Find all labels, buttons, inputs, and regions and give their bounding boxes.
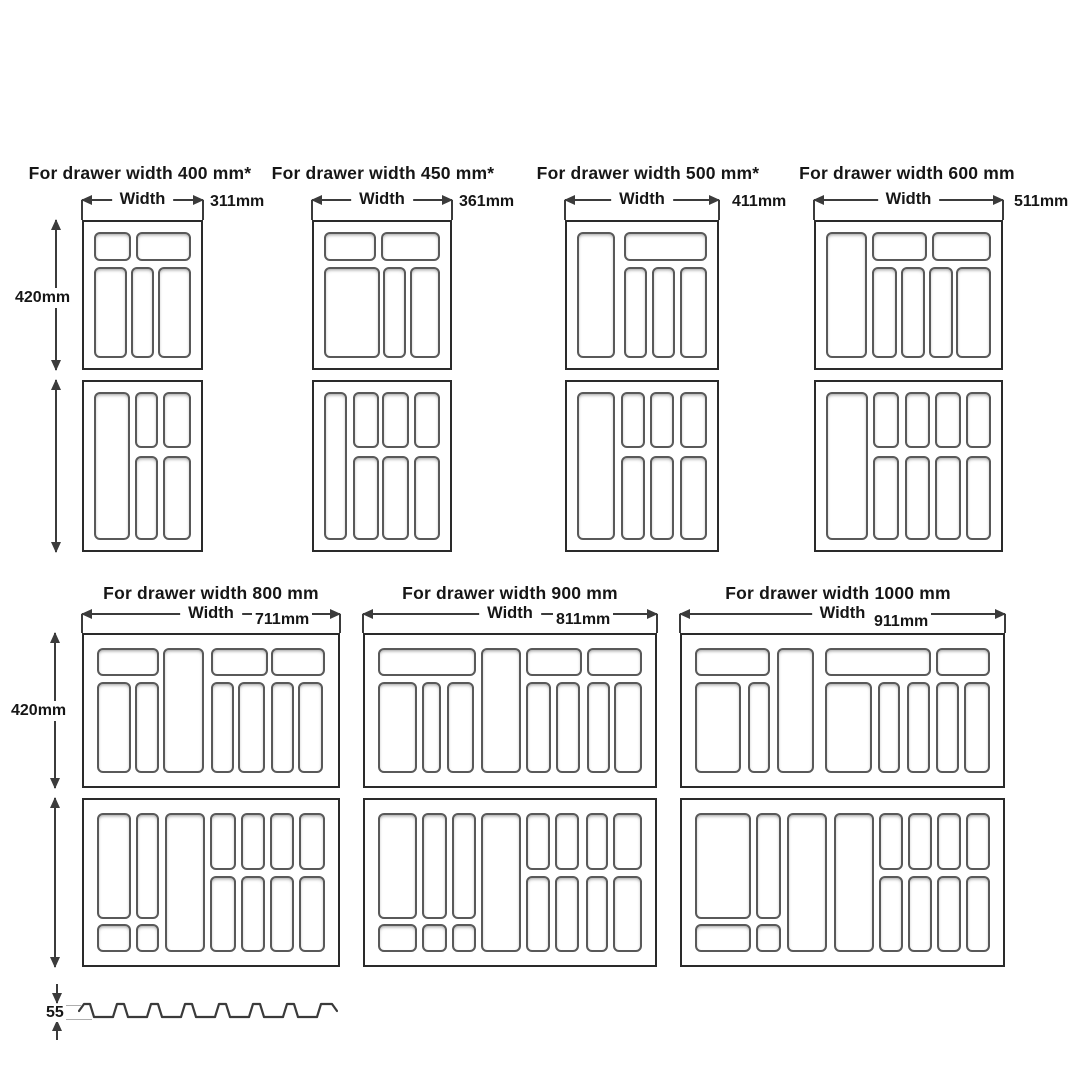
tray-compartment bbox=[210, 813, 236, 870]
tray-compartment bbox=[452, 924, 476, 952]
tray-compartment bbox=[935, 456, 960, 540]
tray-compartment bbox=[414, 392, 440, 448]
tray-compartment-area bbox=[378, 813, 642, 952]
tray-compartment bbox=[526, 682, 550, 773]
extension-line bbox=[81, 614, 83, 633]
tray-compartment bbox=[324, 267, 380, 358]
tray-compartment bbox=[555, 876, 579, 952]
tray-compartment bbox=[238, 682, 264, 773]
panel-title: For drawer width 450 mm* bbox=[272, 163, 495, 184]
tray-compartment bbox=[136, 232, 191, 261]
tray-compartment bbox=[211, 648, 268, 676]
tray-compartment bbox=[452, 813, 476, 919]
tray-compartment bbox=[136, 924, 159, 952]
tray-compartment bbox=[936, 648, 990, 676]
tray-compartment bbox=[956, 267, 991, 358]
tray-compartment bbox=[932, 232, 991, 261]
tray-compartment bbox=[158, 267, 191, 358]
tray-compartment bbox=[756, 924, 780, 952]
tray-compartment bbox=[787, 813, 827, 952]
tray-compartment bbox=[210, 876, 236, 952]
tray-compartment bbox=[621, 392, 645, 448]
width-value-label: 711mm bbox=[252, 610, 312, 630]
width-dim-label: Width bbox=[180, 604, 242, 623]
width-dim-label: Width bbox=[479, 604, 541, 623]
arrow-down-icon bbox=[50, 778, 60, 789]
tray-compartment bbox=[526, 876, 550, 952]
tray-top-view bbox=[363, 633, 657, 788]
tray-compartment bbox=[650, 456, 675, 540]
profile-path bbox=[79, 1004, 337, 1017]
tray-compartment bbox=[382, 456, 409, 540]
tray-compartment bbox=[929, 267, 952, 358]
tray-compartment-area bbox=[826, 232, 991, 358]
tray-compartment bbox=[905, 392, 930, 448]
tray-compartment bbox=[901, 267, 925, 358]
tray-compartment bbox=[879, 813, 903, 870]
tray-top-view bbox=[82, 633, 340, 788]
tray-compartment bbox=[94, 267, 127, 358]
arrow-up-icon bbox=[51, 379, 61, 390]
extension-line bbox=[718, 200, 720, 220]
tray-compartment bbox=[135, 392, 158, 448]
tray-compartment bbox=[298, 682, 324, 773]
tray-compartment bbox=[241, 813, 266, 870]
tray-compartment bbox=[94, 232, 131, 261]
tray-compartment bbox=[211, 682, 234, 773]
tray-side-profile-drawing bbox=[78, 1002, 338, 1026]
tray-compartment bbox=[97, 924, 131, 952]
extension-line bbox=[202, 200, 204, 220]
arrow-down-icon bbox=[51, 360, 61, 371]
tray-compartment bbox=[624, 267, 647, 358]
width-dim-label: Width bbox=[351, 190, 413, 209]
tray-compartment bbox=[131, 267, 153, 358]
extension-line bbox=[813, 200, 815, 220]
tray-compartment bbox=[555, 813, 579, 870]
tray-compartment bbox=[680, 456, 707, 540]
tray-top-view bbox=[82, 220, 203, 370]
tray-compartment-area bbox=[695, 813, 990, 952]
tray-compartment bbox=[935, 392, 960, 448]
tray-compartment bbox=[879, 876, 903, 952]
tray-compartment bbox=[299, 876, 325, 952]
tray-compartment bbox=[481, 813, 521, 952]
arrow-down-icon bbox=[50, 957, 60, 968]
tray-compartment bbox=[378, 813, 417, 919]
tray-compartment bbox=[587, 682, 610, 773]
tray-compartment bbox=[873, 392, 898, 448]
tray-compartment bbox=[422, 682, 442, 773]
dim-line bbox=[54, 798, 56, 967]
tray-compartment-area bbox=[94, 392, 191, 540]
tray-compartment bbox=[937, 876, 961, 952]
extension-line bbox=[564, 200, 566, 220]
tray-compartment bbox=[378, 924, 417, 952]
tray-compartment bbox=[937, 813, 961, 870]
arrow-up-icon bbox=[50, 632, 60, 643]
extension-line bbox=[451, 200, 453, 220]
panel-title: For drawer width 900 mm bbox=[402, 583, 618, 604]
tray-compartment bbox=[556, 682, 580, 773]
tray-compartment bbox=[966, 456, 991, 540]
extension-line bbox=[1002, 200, 1004, 220]
panel-title: For drawer width 500 mm* bbox=[537, 163, 760, 184]
tray-compartment bbox=[97, 813, 131, 919]
tray-compartment bbox=[383, 267, 406, 358]
tray-compartment bbox=[908, 876, 932, 952]
tray-compartment bbox=[135, 682, 159, 773]
tray-compartment bbox=[872, 232, 926, 261]
extension-line bbox=[656, 614, 658, 633]
panel-title: For drawer width 600 mm bbox=[799, 163, 1015, 184]
tray-compartment bbox=[748, 682, 770, 773]
tray-compartment bbox=[324, 232, 376, 261]
tray-compartment-area bbox=[378, 648, 642, 773]
tray-compartment bbox=[826, 232, 867, 358]
width-value-label: 511mm bbox=[1011, 192, 1071, 212]
tray-compartment bbox=[163, 648, 204, 773]
tray-compartment bbox=[624, 232, 707, 261]
tray-compartment bbox=[613, 876, 642, 952]
profile-height-label: 55 bbox=[44, 1004, 66, 1022]
tray-compartment bbox=[586, 813, 608, 870]
extension-line bbox=[81, 200, 83, 220]
tray-compartment bbox=[577, 232, 615, 358]
extension-line bbox=[679, 614, 681, 633]
tray-compartment bbox=[908, 813, 932, 870]
width-dim-label: Width bbox=[611, 190, 673, 209]
tray-compartment bbox=[695, 924, 751, 952]
cutlery-tray-size-diagram: 55 420mmFor drawer width 400 mm*Width311… bbox=[0, 0, 1080, 1080]
tray-compartment bbox=[936, 682, 959, 773]
tray-compartment bbox=[825, 648, 931, 676]
tray-compartment bbox=[422, 924, 448, 952]
tray-variant-view bbox=[312, 380, 452, 552]
tray-compartment-area bbox=[826, 392, 991, 540]
dim-line bbox=[55, 380, 57, 552]
tray-compartment bbox=[907, 682, 930, 773]
tray-compartment bbox=[163, 392, 191, 448]
tray-top-view bbox=[565, 220, 719, 370]
tray-compartment bbox=[587, 648, 642, 676]
tray-compartment-area bbox=[324, 232, 440, 358]
tray-compartment bbox=[777, 648, 814, 773]
width-dim-label: Width bbox=[112, 190, 174, 209]
tray-compartment bbox=[614, 682, 642, 773]
width-value-label: 411mm bbox=[729, 192, 789, 212]
width-value-label: 911mm bbox=[871, 612, 931, 632]
tray-compartment-area bbox=[94, 232, 191, 358]
tray-variant-view bbox=[82, 380, 203, 552]
tray-compartment bbox=[422, 813, 448, 919]
tray-compartment bbox=[414, 456, 440, 540]
tray-compartment bbox=[353, 456, 379, 540]
tray-compartment bbox=[270, 876, 294, 952]
tray-compartment bbox=[353, 392, 379, 448]
tray-compartment bbox=[872, 267, 897, 358]
tray-compartment bbox=[481, 648, 522, 773]
tray-compartment bbox=[613, 813, 642, 870]
tray-compartment bbox=[577, 392, 615, 540]
tray-compartment-area bbox=[97, 813, 325, 952]
tray-compartment bbox=[271, 682, 294, 773]
tray-variant-view bbox=[363, 798, 657, 967]
extension-line bbox=[339, 614, 341, 633]
tray-compartment bbox=[650, 392, 675, 448]
tray-compartment bbox=[378, 648, 476, 676]
arrow-down-icon bbox=[51, 542, 61, 553]
tray-compartment bbox=[826, 392, 868, 540]
tray-compartment-area bbox=[695, 648, 990, 773]
tray-compartment bbox=[834, 813, 874, 952]
tray-variant-view bbox=[814, 380, 1003, 552]
tray-compartment bbox=[381, 232, 440, 261]
tray-compartment bbox=[905, 456, 930, 540]
tray-compartment bbox=[447, 682, 474, 773]
tray-compartment bbox=[94, 392, 130, 540]
tray-compartment bbox=[526, 648, 581, 676]
tray-compartment bbox=[652, 267, 675, 358]
tray-compartment bbox=[873, 456, 898, 540]
arrow-up-icon bbox=[51, 219, 61, 230]
tray-compartment bbox=[695, 648, 770, 676]
tray-compartment bbox=[97, 648, 159, 676]
extension-line bbox=[311, 200, 313, 220]
tray-top-view bbox=[814, 220, 1003, 370]
tray-compartment-area bbox=[577, 392, 707, 540]
tray-compartment bbox=[136, 813, 159, 919]
arrow-up-icon bbox=[50, 797, 60, 808]
extension-line bbox=[1004, 614, 1006, 633]
tray-top-view bbox=[680, 633, 1005, 788]
tray-compartment bbox=[241, 876, 266, 952]
tray-compartment bbox=[680, 392, 707, 448]
width-value-label: 361mm bbox=[456, 192, 517, 212]
tray-compartment bbox=[135, 456, 158, 540]
tray-variant-view bbox=[82, 798, 340, 967]
tray-top-view bbox=[312, 220, 452, 370]
tray-compartment bbox=[165, 813, 205, 952]
tray-compartment-area bbox=[324, 392, 440, 540]
tray-compartment bbox=[680, 267, 707, 358]
panel-title: For drawer width 1000 mm bbox=[725, 583, 951, 604]
tray-variant-view bbox=[680, 798, 1005, 967]
tray-compartment bbox=[695, 813, 751, 919]
width-value-label: 311mm bbox=[207, 192, 267, 212]
panel-title: For drawer width 800 mm bbox=[103, 583, 319, 604]
tray-compartment bbox=[526, 813, 550, 870]
tray-compartment bbox=[966, 813, 990, 870]
tray-compartment bbox=[966, 876, 990, 952]
arrow-down-icon bbox=[52, 993, 62, 1004]
panel-title: For drawer width 400 mm* bbox=[29, 163, 252, 184]
tray-compartment bbox=[586, 876, 608, 952]
tray-compartment-area bbox=[577, 232, 707, 358]
tray-compartment bbox=[695, 682, 741, 773]
tray-compartment bbox=[97, 682, 131, 773]
tray-compartment bbox=[324, 392, 347, 540]
height-dim-label: 420mm bbox=[12, 288, 73, 308]
tray-compartment bbox=[756, 813, 780, 919]
tray-compartment bbox=[163, 456, 191, 540]
tray-compartment bbox=[382, 392, 409, 448]
extension-line bbox=[362, 614, 364, 633]
width-value-label: 811mm bbox=[553, 610, 613, 630]
tray-compartment bbox=[271, 648, 325, 676]
tray-compartment bbox=[964, 682, 990, 773]
width-dim-label: Width bbox=[878, 190, 940, 209]
tray-compartment-area bbox=[97, 648, 325, 773]
height-dim-label: 420mm bbox=[8, 701, 69, 721]
tray-variant-view bbox=[565, 380, 719, 552]
tray-compartment bbox=[825, 682, 872, 773]
width-dim-label: Width bbox=[812, 604, 874, 623]
tray-compartment bbox=[878, 682, 901, 773]
tray-compartment bbox=[621, 456, 645, 540]
tray-compartment bbox=[299, 813, 325, 870]
tray-compartment bbox=[410, 267, 440, 358]
tray-compartment bbox=[378, 682, 417, 773]
tray-compartment bbox=[270, 813, 294, 870]
tray-compartment bbox=[966, 392, 991, 448]
